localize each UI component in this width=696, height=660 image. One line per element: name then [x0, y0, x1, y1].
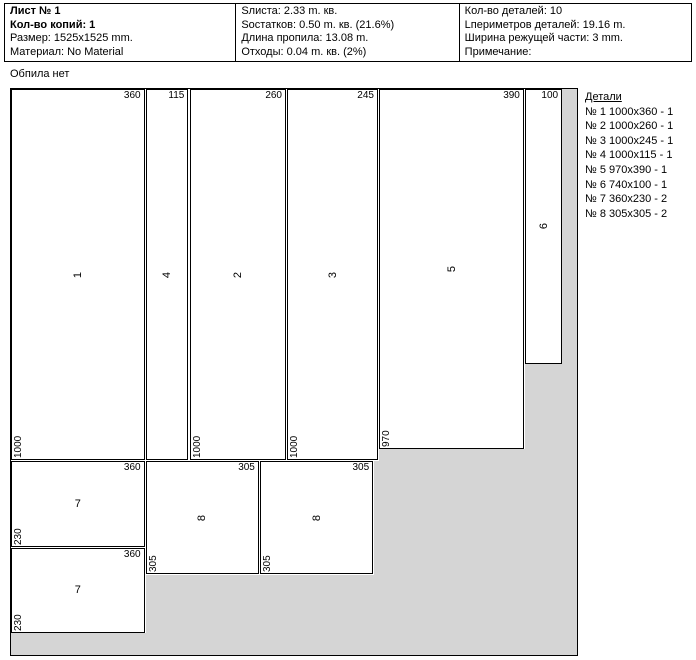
sheet-number-label: Лист № 1 [10, 5, 235, 19]
panel-width-label: 360 [124, 549, 141, 561]
panel-height-label: 1000 [13, 436, 25, 458]
details-legend: Детали № 1 1000x360 - 1№ 2 1000x260 - 1№… [585, 90, 673, 221]
comment-label: Примечание: [465, 46, 691, 60]
panel-6[interactable]: 1006 [525, 89, 562, 364]
panel-height-label: 305 [262, 556, 274, 573]
sheet-area-label: Sлиста: 2.33 m. кв. [241, 5, 458, 19]
details-item: № 5 970x390 - 1 [585, 163, 673, 178]
details-item: № 3 1000x245 - 1 [585, 134, 673, 149]
details-items: № 1 1000x360 - 1№ 2 1000x260 - 1№ 3 1000… [585, 105, 673, 222]
panel-number: 3 [327, 271, 339, 277]
panel-number: 1 [72, 271, 84, 277]
panel-height-label: 1000 [289, 436, 301, 458]
panel-width-label: 305 [353, 462, 370, 474]
panel-8[interactable]: 3053058 [146, 461, 259, 574]
panel-number: 6 [538, 223, 550, 229]
panel-7[interactable]: 3602307 [11, 548, 145, 633]
panel-height-label: 1000 [192, 436, 204, 458]
panel-width-label: 390 [503, 90, 520, 102]
panel-number: 8 [196, 515, 208, 521]
sheet-info-table: Лист № 1 Кол-во копий: 1 Размер: 1525x15… [4, 3, 692, 62]
material-label: Материал: No Material [10, 46, 235, 60]
panel-width-label: 305 [238, 462, 255, 474]
panel-number: 7 [75, 498, 81, 510]
cutting-sheet: 3601000111542601000224510003390970510063… [10, 88, 578, 656]
panel-number: 4 [161, 271, 173, 277]
panel-number: 5 [446, 266, 458, 272]
details-title: Детали [585, 90, 673, 105]
panel-2[interactable]: 26010002 [190, 89, 287, 460]
details-item: № 4 1000x115 - 1 [585, 148, 673, 163]
info-cell-parts: Кол-во деталей: 10 Lпериметров деталей: … [460, 4, 691, 61]
panel-height-label: 230 [13, 528, 25, 545]
panel-1[interactable]: 36010001 [11, 89, 145, 460]
remnants-area-label: Sостатков: 0.50 m. кв. (21.6%) [241, 19, 458, 33]
parts-count-label: Кол-во деталей: 10 [465, 5, 691, 19]
panel-width-label: 360 [124, 90, 141, 102]
sheet-size-label: Размер: 1525x1525 mm. [10, 32, 235, 46]
details-item: № 2 1000x260 - 1 [585, 119, 673, 134]
sheet-canvas: 3601000111542601000224510003390970510063… [11, 89, 577, 655]
panel-width-label: 360 [124, 462, 141, 474]
waste-label: Отходы: 0.04 m. кв. (2%) [241, 46, 458, 60]
panel-width-label: 100 [541, 90, 558, 102]
panel-number: 8 [311, 515, 323, 521]
waste-area [11, 633, 577, 655]
panel-number: 2 [232, 271, 244, 277]
panel-7[interactable]: 3602307 [11, 461, 145, 546]
details-item: № 1 1000x360 - 1 [585, 105, 673, 120]
details-item: № 7 360x230 - 2 [585, 192, 673, 207]
panel-number: 7 [75, 584, 81, 596]
trim-note: Обпила нет [10, 68, 69, 80]
panel-height-label: 970 [381, 430, 393, 447]
details-item: № 6 740x100 - 1 [585, 178, 673, 193]
panel-5[interactable]: 3909705 [379, 89, 524, 449]
perimeters-label: Lпериметров деталей: 19.16 m. [465, 19, 691, 33]
panel-width-label: 245 [357, 90, 374, 102]
panel-8[interactable]: 3053058 [260, 461, 373, 574]
panel-3[interactable]: 24510003 [287, 89, 378, 460]
info-cell-sheet: Лист № 1 Кол-во копий: 1 Размер: 1525x15… [5, 4, 236, 61]
cut-length-label: Длина пропила: 13.08 m. [241, 32, 458, 46]
cutting-layout-page: { "header": { "cells": [ { "lines": [ {"… [0, 0, 696, 660]
info-cell-areas: Sлиста: 2.33 m. кв. Sостатков: 0.50 m. к… [236, 4, 459, 61]
kerf-width-label: Ширина режущей части: 3 mm. [465, 32, 691, 46]
details-item: № 8 305x305 - 2 [585, 207, 673, 222]
panel-height-label: 305 [148, 556, 160, 573]
copies-label: Кол-во копий: 1 [10, 19, 235, 33]
panel-width-label: 115 [168, 90, 184, 102]
panel-height-label: 230 [13, 614, 25, 631]
panel-width-label: 260 [265, 90, 282, 102]
panel-4[interactable]: 1154 [146, 89, 189, 460]
